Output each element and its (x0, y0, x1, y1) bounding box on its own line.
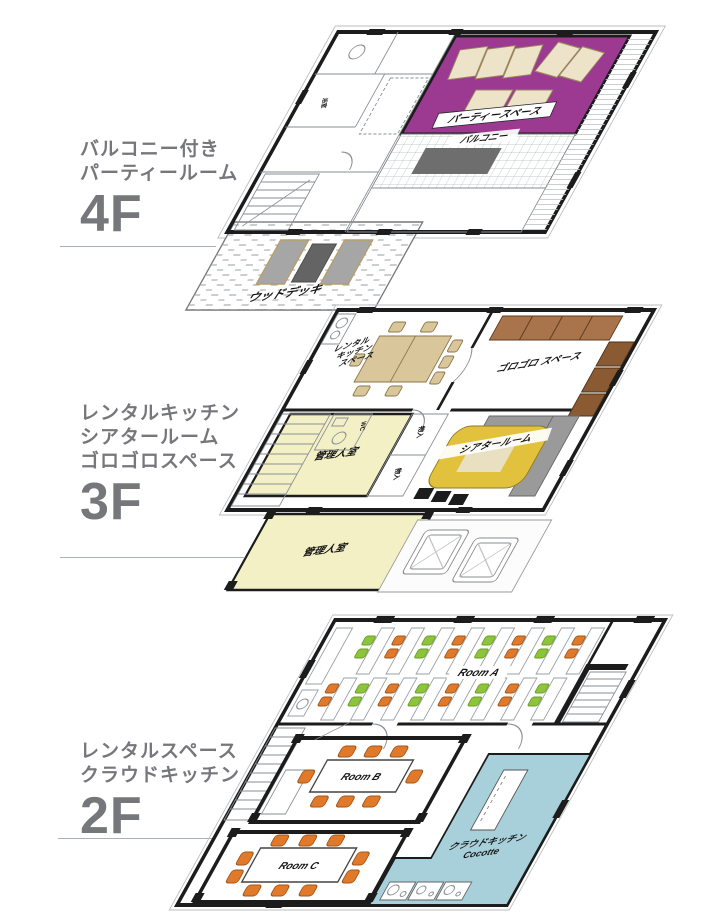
room-a-label: Room A (446, 666, 511, 679)
room-a-desk-row-2 (310, 678, 567, 720)
floor-guide-poster: バルコニー付き パーティールーム 4F レンタルキッチン シアタールーム ゴロゴ… (0, 0, 720, 914)
bath-label: 浴室 (319, 96, 330, 110)
closet-b-label: 物入 (391, 466, 403, 481)
room-c-label: Room C (276, 861, 321, 872)
theater-speakers (410, 488, 472, 505)
floor-4f-plan: ウッドデッキ 浴室 (0, 20, 720, 320)
rental-kitchen-space: レンタル キッチン スペース (292, 314, 477, 396)
gorogoro-label: ゴロゴロ スペース (495, 350, 584, 375)
balcony: バルコニー (372, 129, 579, 188)
stairs-2f-right (553, 664, 630, 724)
kitchen-fixtures (380, 882, 472, 900)
balcony-table (411, 148, 501, 174)
room-b-label: Room B (339, 772, 384, 783)
svg-text:Room A: Room A (456, 668, 502, 679)
wood-deck: ウッドデッキ (186, 222, 423, 310)
floor-3f-plan: 管理人室 (0, 302, 720, 608)
closet-a-label: 物入 (415, 424, 427, 439)
gorogoro-space: ゴロゴロ スペース (447, 316, 648, 416)
floor-2f-plan: クラウドキッチン Cocotte (0, 612, 720, 914)
